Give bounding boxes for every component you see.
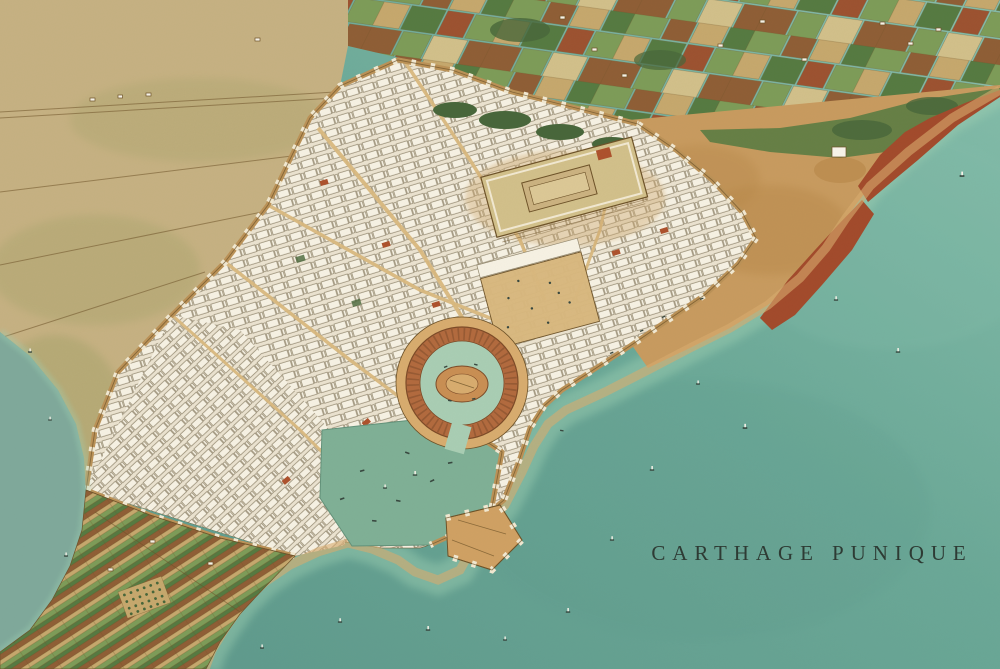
title-caption: CARTHAGE PUNIQUE xyxy=(636,541,988,566)
illustration-carthage-map: CARTHAGE PUNIQUE xyxy=(0,0,1000,669)
illustration-canvas xyxy=(0,0,1000,669)
paper-grain-texture xyxy=(0,0,1000,669)
